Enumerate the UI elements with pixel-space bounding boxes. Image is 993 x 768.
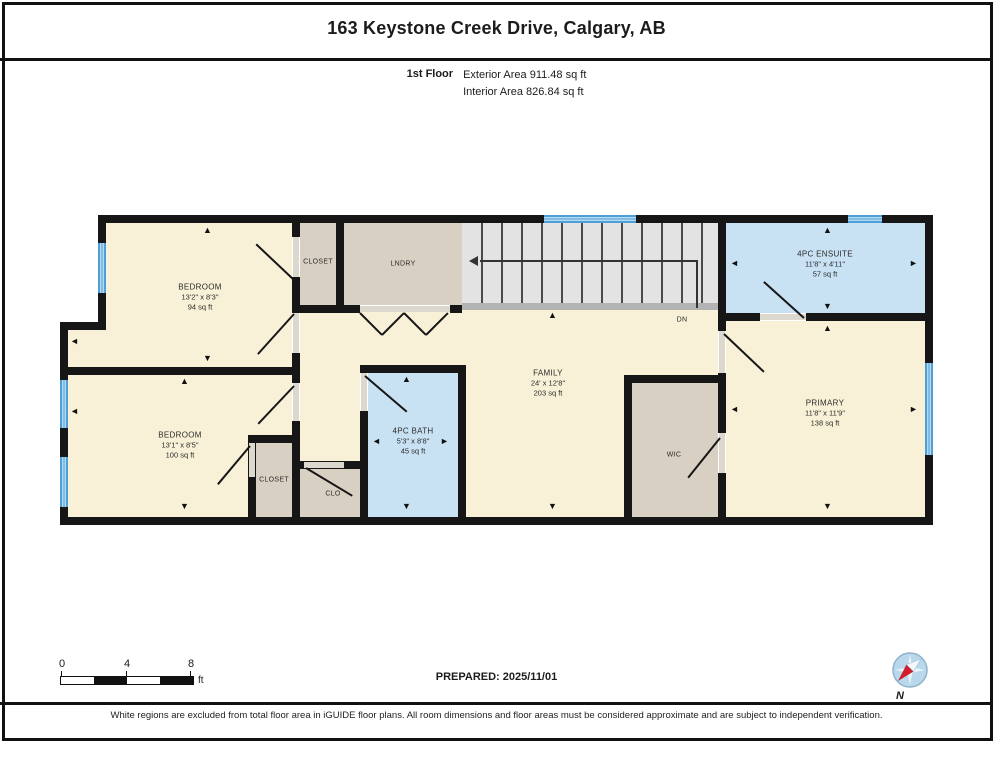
wall-segment xyxy=(292,305,360,313)
room-area: 203 sq ft xyxy=(531,389,565,398)
wall-segment xyxy=(718,473,726,517)
room-name: FAMILY xyxy=(531,369,565,378)
wall-segment xyxy=(60,367,300,375)
header-divider xyxy=(0,58,993,61)
room-name: CLOSET xyxy=(259,477,289,484)
wall-segment xyxy=(292,443,300,517)
interior-area: Interior Area 826.84 sq ft xyxy=(463,84,586,101)
room-label-laundry: LNDRY xyxy=(390,261,415,268)
stair-tread xyxy=(701,223,703,303)
dimension-arrow: ► xyxy=(909,405,918,414)
dimension-arrow: ▲ xyxy=(548,311,557,320)
dimension-arrow: ▲ xyxy=(823,324,832,333)
dimension-arrow: ▼ xyxy=(823,302,832,311)
disclaimer-text: White regions are excluded from total fl… xyxy=(0,710,993,721)
wall-segment xyxy=(718,373,726,433)
window xyxy=(544,215,636,223)
room-area: 57 sq ft xyxy=(797,270,853,279)
wall-segment xyxy=(60,517,933,525)
page-title: 163 Keystone Creek Drive, Calgary, AB xyxy=(0,18,993,39)
window xyxy=(60,380,68,428)
room-name: 4PC BATH xyxy=(393,427,434,436)
room-label-clo: CLO xyxy=(325,491,340,498)
room-label-closet2: CLOSET xyxy=(259,477,289,484)
room-name: CLOSET xyxy=(303,259,333,266)
room-label-wic: WIC xyxy=(667,452,682,459)
wall-segment xyxy=(450,305,462,313)
room-dims: 11'8" x 4'11" xyxy=(797,260,853,269)
dimension-arrow: ▼ xyxy=(402,502,411,511)
room-area: 94 sq ft xyxy=(178,303,221,312)
wall-segment xyxy=(336,223,344,305)
dimension-arrow: ◄ xyxy=(70,407,79,416)
scale-tick-label: 4 xyxy=(124,658,130,670)
dimension-arrow: ◄ xyxy=(730,405,739,414)
floor-label: 1st Floor xyxy=(407,67,453,101)
room-family xyxy=(300,310,624,365)
room-dims: 24' x 12'8" xyxy=(531,379,565,388)
room-name: BEDROOM xyxy=(158,431,201,440)
door-opening xyxy=(249,443,255,477)
dimension-arrow: ▼ xyxy=(180,502,189,511)
door-opening xyxy=(293,237,299,277)
dimension-arrow: ► xyxy=(440,437,449,446)
stairs-down-label: DN xyxy=(677,317,688,324)
stair-tread xyxy=(521,223,523,303)
compass-rose-icon: N xyxy=(888,650,940,702)
wall-segment xyxy=(292,353,300,367)
dn-label: DN xyxy=(677,317,688,324)
stair-tread xyxy=(501,223,503,303)
exterior-area: Exterior Area 911.48 sq ft xyxy=(463,67,586,84)
dimension-arrow: ◄ xyxy=(70,337,79,346)
door-opening xyxy=(360,306,450,312)
wall-segment xyxy=(292,223,300,237)
window xyxy=(60,457,68,507)
floor-info: 1st Floor Exterior Area 911.48 sq ft Int… xyxy=(0,67,993,101)
left-arrow-icon xyxy=(469,256,478,266)
wall-segment xyxy=(360,365,466,373)
window xyxy=(98,243,106,293)
dimension-arrow: ▲ xyxy=(180,377,189,386)
room-area: 45 sq ft xyxy=(393,447,434,456)
room-dims: 11'8" x 11'9" xyxy=(805,409,845,418)
door-opening xyxy=(293,383,299,421)
room-wic xyxy=(632,383,718,517)
stairs-rail xyxy=(462,303,718,310)
dimension-arrow: ▲ xyxy=(402,375,411,384)
stair-tread xyxy=(601,223,603,303)
dimension-arrow: ◄ xyxy=(372,437,381,446)
room-family-east xyxy=(624,310,718,375)
wall-segment xyxy=(806,313,925,321)
room-name: 4PC ENSUITE xyxy=(797,250,853,259)
stair-run-line xyxy=(480,260,696,262)
room-label-bedroom1: BEDROOM 13'2" x 8'3" 94 sq ft xyxy=(178,283,221,312)
window xyxy=(925,363,933,455)
wall-segment xyxy=(718,313,760,321)
room-label-ensuite: 4PC ENSUITE 11'8" x 4'11" 57 sq ft xyxy=(797,250,853,279)
room-name: PRIMARY xyxy=(805,399,845,408)
scale-tick-label: 8 xyxy=(188,658,194,670)
floor-plan: ▲ ▼ ◄ ▲ ◄ ▼ ▲ ▼ ◄ ► ▲ ▼ ▲ ◄ ► ▼ ▲ ◄ ► ▼ … xyxy=(60,215,933,525)
compass-north-label: N xyxy=(896,690,904,702)
wall-segment xyxy=(292,375,300,383)
room-label-primary: PRIMARY 11'8" x 11'9" 138 sq ft xyxy=(805,399,845,428)
room-dims: 13'1" x 8'5" xyxy=(158,441,201,450)
dimension-arrow: ▲ xyxy=(823,226,832,235)
room-name: LNDRY xyxy=(390,261,415,268)
compass-svg xyxy=(888,650,932,694)
stair-tread xyxy=(561,223,563,303)
stair-tread xyxy=(681,223,683,303)
room-dims: 5'3" x 8'8" xyxy=(393,437,434,446)
room-label-bath: 4PC BATH 5'3" x 8'8" 45 sq ft xyxy=(393,427,434,456)
room-name: BEDROOM xyxy=(178,283,221,292)
wall-segment xyxy=(624,383,632,517)
stair-tread xyxy=(481,223,483,303)
room-label-bedroom2: BEDROOM 13'1" x 8'5" 100 sq ft xyxy=(158,431,201,460)
hall-corridor xyxy=(300,365,360,461)
stair-tread xyxy=(661,223,663,303)
door-opening xyxy=(304,462,344,468)
dimension-arrow: ► xyxy=(909,259,918,268)
wall-segment xyxy=(458,365,466,517)
wall-segment xyxy=(248,435,300,443)
dimension-arrow: ▲ xyxy=(203,226,212,235)
room-area: 138 sq ft xyxy=(805,419,845,428)
stair-tread xyxy=(621,223,623,303)
footer-divider xyxy=(0,702,993,705)
wall-segment xyxy=(624,375,718,383)
dimension-arrow: ▼ xyxy=(823,502,832,511)
dimension-arrow: ◄ xyxy=(730,259,739,268)
door-opening xyxy=(719,331,725,373)
stair-tread xyxy=(541,223,543,303)
floor-plan-page: 163 Keystone Creek Drive, Calgary, AB 1s… xyxy=(0,0,993,768)
room-name: WIC xyxy=(667,452,682,459)
room-name: CLO xyxy=(325,491,340,498)
dimension-arrow: ▼ xyxy=(203,354,212,363)
stair-tread xyxy=(581,223,583,303)
stair-tread xyxy=(641,223,643,303)
prepared-date: PREPARED: 2025/11/01 xyxy=(0,671,993,683)
room-label-family: FAMILY 24' x 12'8" 203 sq ft xyxy=(531,369,565,398)
room-label-closet1: CLOSET xyxy=(303,259,333,266)
scale-tick-label: 0 xyxy=(59,658,65,670)
dimension-arrow: ▼ xyxy=(548,502,557,511)
room-dims: 13'2" x 8'3" xyxy=(178,293,221,302)
wall-segment xyxy=(98,215,933,223)
stair-run-line xyxy=(696,260,698,308)
window xyxy=(848,215,882,223)
door-opening xyxy=(293,313,299,353)
room-area: 100 sq ft xyxy=(158,451,201,460)
